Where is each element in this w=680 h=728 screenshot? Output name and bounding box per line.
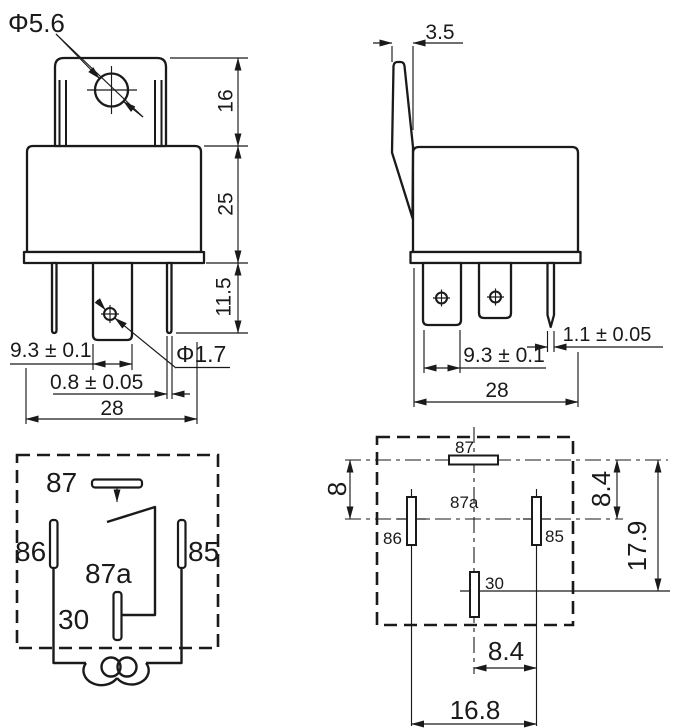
base-flange-side [411,252,581,263]
terminal-86-bar [50,520,58,568]
bottom-pin-85 [532,497,541,545]
front-pin-hole-diameter-label: Φ1.7 [176,341,226,367]
schematic-pin-87a-label: 87a [85,558,132,589]
bottom-offset-upper-label: 8.4 [586,471,616,507]
front-pin-length-label: 11.5 [212,277,235,316]
schematic-pin-87-label: 87 [46,467,77,498]
drawing-canvas: Φ5.6 16 25 11.5 9.3 ± 0.1 Φ1.7 0.8 ± 0.0… [0,0,680,728]
bottom-offset-top-label: 8 [322,482,352,496]
side-pin-spacing-label: 9.3 ± 0.1 [463,344,545,367]
bottom-half-span-label: 8.4 [488,636,524,666]
front-pin-thickness-label: 0.8 ± 0.05 [50,371,143,394]
relay-dimension-drawing: Φ5.6 16 25 11.5 9.3 ± 0.1 Φ1.7 0.8 ± 0.0… [0,0,680,728]
schematic-pin-85-label: 85 [188,536,219,567]
bottom-pin-86-label: 86 [383,529,402,548]
front-hole-diameter-label: Φ5.6 [8,8,65,38]
front-pin-spacing-label: 9.3 ± 0.1 [10,339,92,362]
pin-thin-side [548,263,555,327]
relay-body-front [27,146,201,252]
side-pin-thickness-label: 1.1 ± 0.05 [563,324,652,346]
bottom-offset-total-label: 17.9 [622,521,652,572]
schematic-pin-30-label: 30 [58,604,89,635]
front-overall-width-label: 28 [100,397,123,420]
base-flange-front [24,252,204,263]
terminal-85-bar [178,520,186,568]
bottom-pin-30 [470,572,479,617]
front-tab-height-label: 16 [214,89,237,112]
terminal-30-bar [114,592,122,640]
side-tab-thickness-label: 3.5 [425,21,454,44]
bottom-pin-87-label: 87 [455,438,474,457]
contact-87-bar [92,480,142,488]
bottom-pin-85-label: 85 [545,527,564,546]
side-overall-width-label: 28 [485,379,508,402]
relay-body-side [413,147,578,252]
schematic-pin-86-label: 86 [15,536,46,567]
bottom-pin-86 [407,497,416,545]
pin-right-front [167,263,172,333]
bottom-pin-30-label: 30 [485,574,504,593]
pin-left-front [52,263,57,333]
bottom-pin-87a-label: 87a [450,493,479,512]
front-body-height-label: 25 [214,192,237,215]
bottom-full-span-label: 16.8 [450,695,501,725]
